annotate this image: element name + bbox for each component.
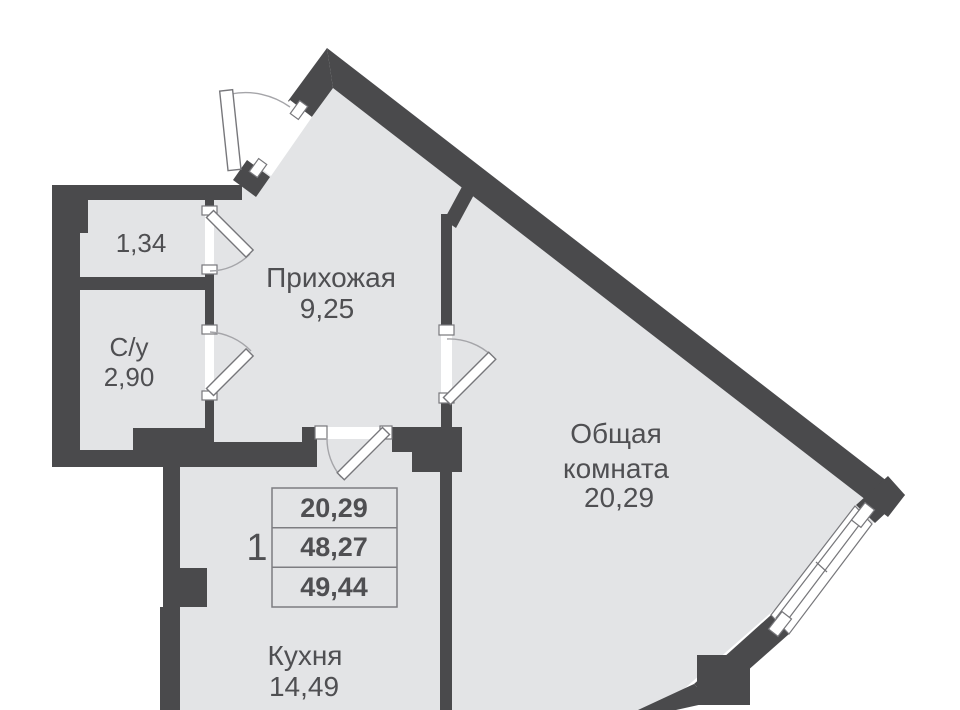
living-name-label-line1: Общая <box>570 418 662 449</box>
kitchen-name-label: Кухня <box>268 640 343 671</box>
wall-segment <box>205 274 214 325</box>
floorplan-image: 1,34 С/у 2,90 Прихожая 9,25 Общая комнат… <box>0 0 960 710</box>
wall-segment <box>52 185 242 200</box>
door-jamb-cap <box>202 265 217 274</box>
wall-segment <box>205 400 214 442</box>
flat-number-label: 1 <box>246 527 267 569</box>
wall-segment <box>441 403 452 431</box>
living-area-label: 20,29 <box>584 482 654 513</box>
wall-segment <box>205 198 214 206</box>
hallway-area-label: 9,25 <box>300 293 355 324</box>
wall-segment <box>392 427 412 452</box>
kitchen-area-label: 14,49 <box>269 671 339 702</box>
bathroom-name-label: С/у <box>110 332 149 362</box>
storage-area-label: 1,34 <box>116 228 167 258</box>
wall-segment <box>160 607 180 710</box>
wall-segment <box>440 472 452 710</box>
wall-segment <box>441 214 452 325</box>
wall-segment <box>80 277 205 290</box>
floorplan-svg: 1,34 С/у 2,90 Прихожая 9,25 Общая комнат… <box>0 0 960 710</box>
hallway-name-label: Прихожая <box>266 262 396 293</box>
table-total-area-value: 49,44 <box>300 572 368 602</box>
wall-segment <box>207 442 302 467</box>
living-door-opening <box>441 335 452 393</box>
wall-segment <box>163 568 207 607</box>
door-jamb-cap <box>439 325 454 335</box>
table-living-area-value: 20,29 <box>300 493 368 523</box>
wall-segment <box>133 428 207 467</box>
bathroom-area-label: 2,90 <box>104 362 155 392</box>
wall-segment <box>412 427 462 472</box>
table-usable-area-value: 48,27 <box>300 532 368 562</box>
door-jamb-cap <box>315 426 327 439</box>
living-name-label-line2: комната <box>563 453 669 484</box>
